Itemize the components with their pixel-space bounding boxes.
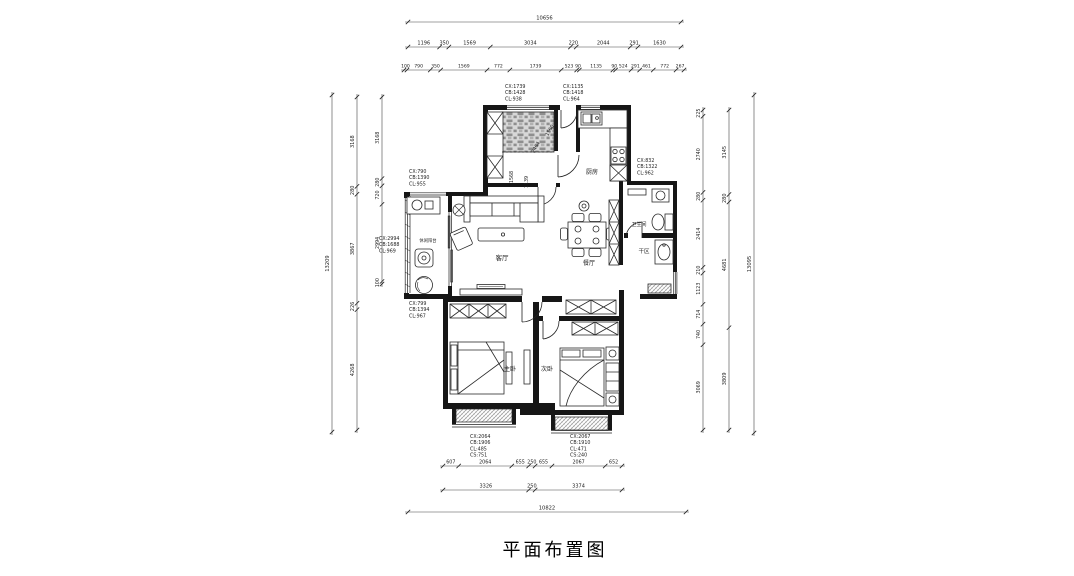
second-door (543, 321, 559, 339)
dim-label: 740 (696, 330, 702, 339)
dim-label: 3145 (722, 146, 728, 159)
dim-left-mid: 316828038672264268 (350, 94, 359, 433)
window-note-top-left-window: CX:1739CB:1428CL:938 (505, 84, 525, 102)
label-kitchen: 厨房 (586, 168, 598, 176)
dim-label: 210 (696, 266, 702, 275)
master-wardrobe (450, 304, 506, 318)
sofa (464, 196, 544, 222)
label-dining: 餐厅 (583, 259, 595, 267)
dim-label: 10656 (536, 16, 553, 22)
label-master-bedroom: 主卧 (504, 365, 516, 373)
window-note-top-right-window: CX:1135CB:1418CL:964 (563, 84, 583, 102)
dim-label: 225 (696, 109, 702, 118)
dim-label: 4681 (722, 258, 728, 271)
dim-label: 100 (375, 278, 381, 287)
dim-label: 1739 (530, 64, 542, 70)
label-dry-area: 干区 (638, 248, 650, 255)
window-note-master-bay-window: CX:2064CB:1906CL:485CS:751 (470, 434, 490, 459)
dry-area-basin (648, 240, 673, 293)
dim-label: 350 (439, 41, 449, 47)
dim-label: 280 (375, 178, 381, 187)
dim-label: 1123 (696, 283, 702, 295)
dim-label: 2740 (696, 148, 702, 160)
dim-label: 1196 (417, 41, 430, 47)
dim-label: 13209 (325, 255, 331, 272)
floor-plan-canvas: 1065611963501569303422020442911630100790… (0, 0, 1074, 576)
dim-label: 267 (676, 64, 685, 70)
dim-label: 3034 (524, 41, 537, 47)
armchair (450, 227, 473, 251)
dim-label: 2064 (479, 460, 491, 466)
dim-label: 90 (575, 64, 581, 70)
dim-label: 523 (565, 64, 574, 70)
window-note-balcony-bottom-window: CX:799CB:1394CL:967 (409, 301, 429, 319)
dim-label: 652 (609, 460, 618, 466)
walls (404, 105, 677, 430)
dim-label: 10822 (539, 506, 556, 512)
dim-label: 3168 (375, 132, 381, 144)
label-bathroom: 卫生间 (631, 221, 646, 228)
window-note-second-bay-window: CX:2067CB:1910CL:471CS:240 (570, 434, 590, 459)
label-second-bedroom: 次卧 (541, 365, 553, 373)
dim-label: 13095 (747, 256, 753, 273)
floor-plan-drawing: 1065611963501569303422020442911630100790… (0, 0, 1074, 576)
master-bed (450, 342, 512, 394)
dim-label: 3069 (696, 381, 702, 393)
kitchen-door (558, 155, 579, 177)
dim-label: 607 (446, 460, 455, 466)
dim-label: 280 (350, 186, 356, 196)
entry-door (561, 110, 577, 128)
dining-set (561, 214, 614, 257)
master-tv-cabinet (524, 350, 530, 384)
dim-label: 3867 (350, 242, 356, 255)
dim-label: 1135 (590, 64, 602, 70)
hall-wardrobe (566, 300, 616, 314)
dim-right-total: 13095 (747, 92, 756, 436)
dim-label: 1569 (458, 64, 470, 70)
dim-label: 90 (611, 64, 617, 70)
dim-label: 250 (527, 484, 537, 490)
dim-label: 3168 (350, 135, 356, 148)
dining-lamp (579, 201, 589, 211)
stove (611, 147, 626, 164)
dining-cabinet (609, 200, 619, 265)
dim-label: 1630 (653, 41, 666, 47)
balcony-table (416, 277, 433, 294)
coffee-table-decor (501, 233, 504, 236)
dim-label: 2414 (696, 228, 702, 240)
dim-label: 524 (619, 64, 628, 70)
balcony-sink (407, 197, 440, 214)
dim-label: 3374 (572, 484, 585, 490)
window-note-kitchen-right-window: CX:832CB:1322CL:962 (637, 158, 657, 176)
dim-label: 720 (375, 190, 381, 199)
dim-label: 250 (527, 460, 536, 466)
toilet-bowl (652, 214, 664, 230)
drawing-title: 平面布置图 (0, 536, 1074, 562)
cloakroom-closet (487, 112, 554, 178)
dim-label: 220 (569, 41, 579, 47)
window-note-balcony-top-window: CX:790CB:1390CL:955 (409, 169, 429, 187)
dim-label: 772 (660, 64, 669, 70)
dim-left-total: 13209 (325, 92, 334, 435)
dim-top-total: 10656 (405, 16, 684, 25)
label-balcony: 休闲阳台 (419, 237, 436, 244)
second-nightstands (606, 347, 619, 406)
dim-label: 2067 (572, 460, 584, 466)
dim-label: 4268 (350, 363, 356, 376)
dim-label: 714 (696, 310, 702, 319)
dim-label: 291 (631, 64, 640, 70)
second-bed (560, 348, 604, 406)
dim-label: 350 (431, 64, 440, 70)
dim-label: 655 (539, 460, 548, 466)
dim-label: 226 (350, 302, 356, 312)
dim-right-inner: 2252740280241421011237147403069 (696, 107, 705, 433)
dim-label: 772 (494, 64, 503, 70)
dimension-chains: 1065611963501569303422020442911630100790… (325, 16, 756, 515)
dim-label: 655 (516, 460, 525, 466)
dim-label: 461 (642, 64, 651, 70)
interior-dim: 1568 (509, 171, 515, 183)
window-note-balcony-left-window: CX:2994CB:1688CL:969 (379, 236, 399, 254)
dim-label: 280 (696, 192, 702, 201)
dim-top-row3: 1007903501569772173952390113590524291461… (401, 64, 687, 73)
toilet-tank (665, 214, 673, 230)
dim-label: 3326 (479, 484, 492, 490)
fridge (610, 165, 627, 181)
dim-label: 2044 (597, 41, 610, 47)
dim-bottom-total: 10822 (405, 506, 689, 515)
dim-label: 280 (722, 193, 728, 203)
label-living: 客厅 (496, 253, 510, 262)
dim-label: 1569 (463, 41, 476, 47)
dim-top-row2: 11963501569303422020442911630 (405, 41, 684, 50)
washing-machine (415, 249, 433, 267)
tv-cabinet (460, 285, 522, 296)
dim-label: 291 (629, 41, 639, 47)
second-bedroom-wardrobe (572, 322, 618, 335)
dim-label: 790 (414, 64, 423, 70)
dim-label: 100 (401, 64, 410, 70)
dim-bottom-row1: 60720646552506552067652 (440, 460, 625, 469)
dim-label: 3809 (722, 372, 728, 385)
interior-dim: 1139 (524, 176, 530, 188)
dim-left-inner: 31682807202994100 (375, 94, 384, 287)
dim-bottom-row2: 33262503374 (440, 484, 625, 493)
dim-right-mid: 314528046813809 (722, 107, 731, 433)
